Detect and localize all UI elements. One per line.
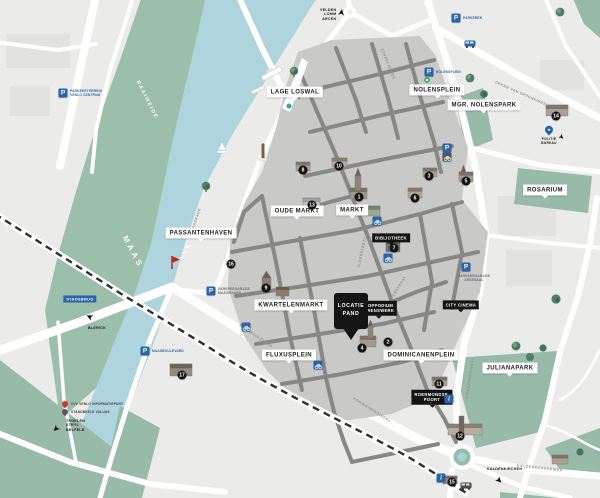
sign-kaldenkirchen: KALDENKIRCHEN — [487, 467, 522, 471]
bicycle-parking-icon[interactable] — [443, 153, 452, 162]
label-kwartelenmarkt: KWARTELENMARKT — [254, 300, 327, 311]
label-lage-loswal: LAGE LOSWAL — [267, 87, 323, 98]
label-stadsbrug: STADSBRUG — [63, 296, 96, 303]
bicycle-parking-icon[interactable] — [242, 323, 251, 332]
bicycle-parking-icon[interactable] — [384, 254, 393, 263]
meadow-name-text: RAAIWEIDE — [135, 80, 159, 120]
map-marker-1[interactable]: 1 — [355, 193, 364, 202]
map-marker-15[interactable]: 15 — [448, 478, 457, 487]
label-dominicanenplein: DOMINICANENPLEIN — [383, 350, 458, 361]
parking-icon[interactable]: P — [452, 14, 461, 23]
parking-icon[interactable]: P — [141, 347, 150, 356]
label-nolensplein: NOLENSPLEIN — [409, 85, 464, 96]
map-marker-10[interactable]: 10 — [335, 162, 344, 171]
legend-item-vvv: VVV VENLO INFORMATIEPUNT — [62, 401, 123, 407]
red-pin-icon — [61, 400, 69, 408]
parking-label: MAASBOULEVARD — [152, 349, 184, 353]
label-bibliotheek: BIBLIOTHEEK — [372, 233, 410, 242]
map-marker-2[interactable]: 2 — [384, 338, 393, 347]
legend-item-statue: STANDBEELD VALUAS — [62, 409, 110, 415]
location-pin[interactable]: LOCATIE PAND — [334, 293, 368, 329]
parking-icon[interactable]: P — [207, 287, 216, 296]
bicycle-parking-icon[interactable] — [373, 217, 382, 226]
map-marker-7[interactable]: 7 — [390, 244, 399, 253]
parking-label: PARKEERTERREINVENLO CENTRUM — [70, 89, 102, 97]
location-pin-line: LOCATIE — [338, 303, 365, 311]
street-name: KONINGINNESINGEL — [352, 397, 392, 424]
map-marker-5[interactable]: 5 — [462, 177, 471, 186]
parking-icon[interactable]: P — [425, 68, 434, 77]
police-pin-icon[interactable] — [543, 124, 554, 135]
label-julianapark: JULIANAPARK — [483, 363, 538, 374]
map-marker-13[interactable]: 13 — [308, 201, 317, 210]
street-name: STRAELSEWEG — [380, 48, 396, 80]
map-marker-8[interactable]: 8 — [299, 166, 308, 175]
map-marker-4[interactable]: 4 — [358, 344, 367, 353]
legend-text: STANDBEELD VALUAS — [71, 410, 110, 414]
arrow-tegelen-icon: ➤ — [50, 423, 62, 435]
info-icon[interactable]: i — [445, 395, 454, 404]
location-pin-line: PAND — [343, 311, 360, 319]
map-marker-17[interactable]: 17 — [178, 371, 187, 380]
label-rosarium: ROSARIUM — [523, 185, 567, 196]
city-map-venlo: MAAS RAAIWEIDE MAASKADE VLEESSTRAAT PEPE… — [0, 0, 600, 498]
map-marker-9[interactable]: 9 — [262, 284, 271, 293]
arrow-north-icon: ➤ — [337, 8, 347, 17]
poi-line: POORT — [424, 397, 440, 402]
poi-line: BIBLIOTHEEK — [375, 235, 407, 240]
gray-pin-icon — [61, 408, 69, 416]
sign-tegelen-steyl-belfeld: TEGELENSTEYLBELFELD — [66, 419, 85, 432]
legend-text: VVV VENLO INFORMATIEPUNT — [71, 402, 123, 406]
map-marker-14[interactable]: 14 — [552, 112, 561, 121]
parking-label: PARKEERGARAGEMAASWAARD — [218, 287, 250, 295]
parking-icon[interactable]: P — [443, 144, 452, 153]
sign-blerick: BLERICK — [88, 326, 106, 330]
label-passantenhaven: PASSANTENHAVEN — [166, 228, 237, 239]
police-arrow-icon: ➤ — [556, 133, 565, 142]
label-markt: MARKT — [336, 205, 368, 216]
arrow-blerick-icon: ➤ — [84, 311, 95, 322]
police-label: POLITIEBUREAU — [541, 137, 556, 145]
map-marker-12[interactable]: 12 — [456, 432, 465, 441]
label-fluxusplein: FLUXUSPLEIN — [262, 350, 316, 361]
map-marker-6[interactable]: 6 — [411, 194, 420, 203]
info-icon[interactable]: i — [437, 474, 446, 483]
map-marker-16[interactable]: 16 — [227, 260, 236, 269]
sign-velden-lomm-arcen: VELDENLOMMARCEN — [320, 8, 336, 21]
parking-icon[interactable]: P — [59, 89, 68, 98]
parking-label: NOLENSPLEIN — [436, 70, 461, 74]
parking-label: PARKEREN — [463, 16, 482, 20]
parking-icon[interactable]: P — [462, 263, 471, 272]
street-name: VLEESSTRAAT — [357, 236, 367, 268]
bus-icon — [460, 477, 472, 495]
map-overlay: MAAS RAAIWEIDE MAASKADE VLEESSTRAAT PEPE… — [0, 0, 600, 498]
street-name: KALDENKERKERWEG — [517, 464, 563, 473]
poi-line: CITY CINEMA — [446, 302, 476, 307]
label-mgr-nolenspark: MGR. NOLENSPARK — [448, 100, 521, 111]
poi-line: POPPODIUM — [365, 303, 393, 308]
bus-icon — [464, 35, 476, 53]
map-marker-3[interactable]: 3 — [425, 172, 434, 181]
arrow-kaldenkirchen-icon: ➤ — [493, 475, 505, 487]
street-name: PRINSESSESINGEL — [465, 357, 475, 399]
map-marker-11[interactable]: 11 — [435, 380, 444, 389]
poi-line: GRENSWERK — [364, 308, 394, 313]
parking-label: PARKEERGARAGEARSENAAL — [458, 274, 490, 282]
river-name: MAAS — [121, 234, 146, 270]
bicycle-parking-icon[interactable] — [314, 361, 323, 370]
label-city-cinema: CITY CINEMA — [443, 300, 479, 309]
